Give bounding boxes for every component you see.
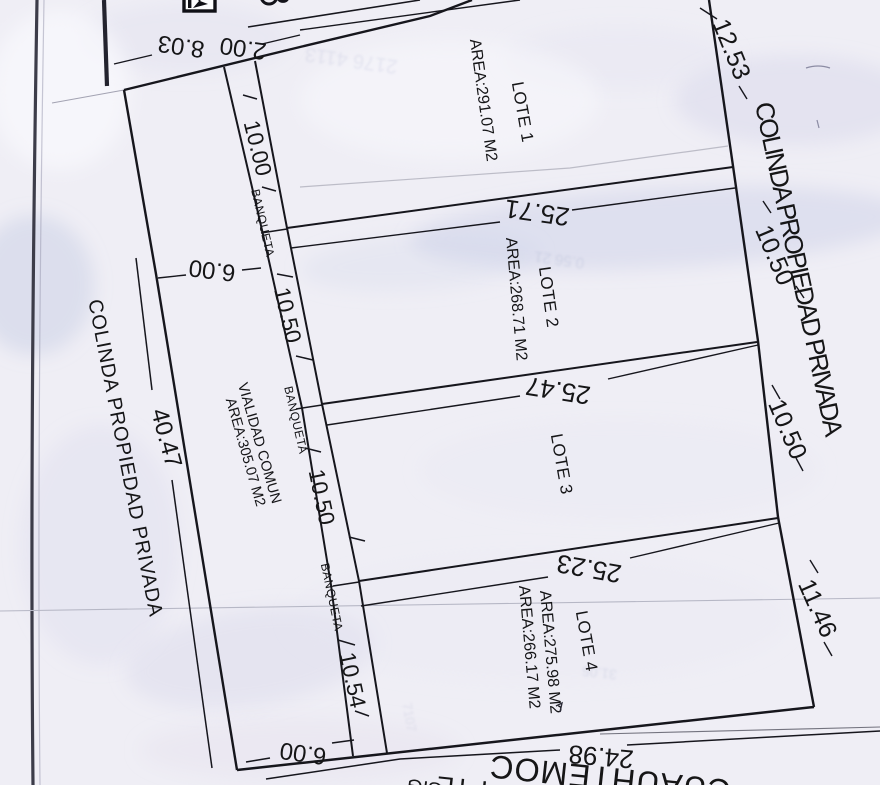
svg-text:6.00: 6.00 [187, 254, 237, 286]
